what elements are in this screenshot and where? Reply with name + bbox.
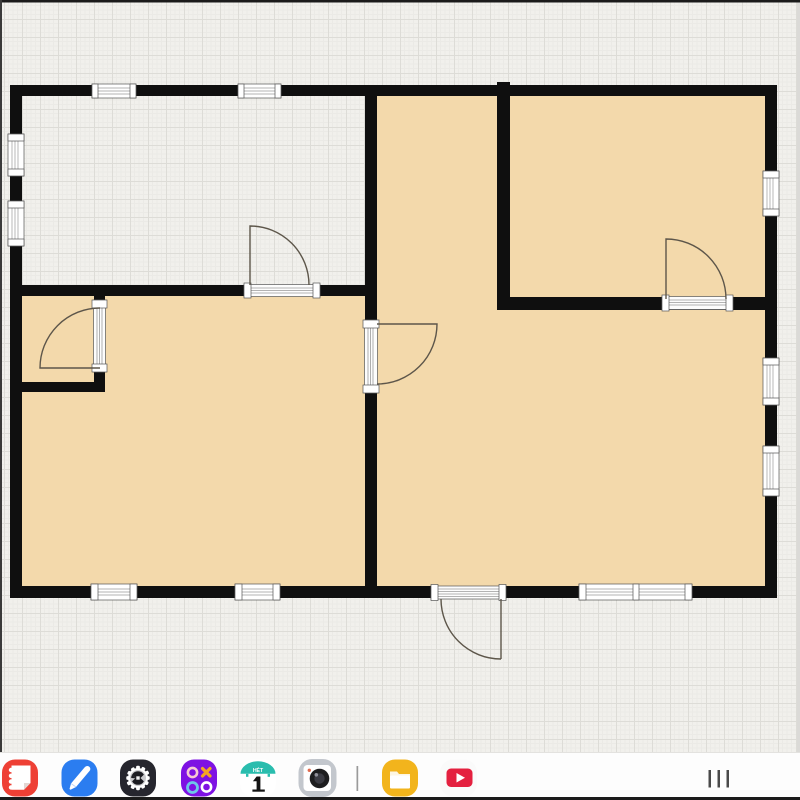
svg-text:HÉT: HÉT	[253, 766, 264, 774]
